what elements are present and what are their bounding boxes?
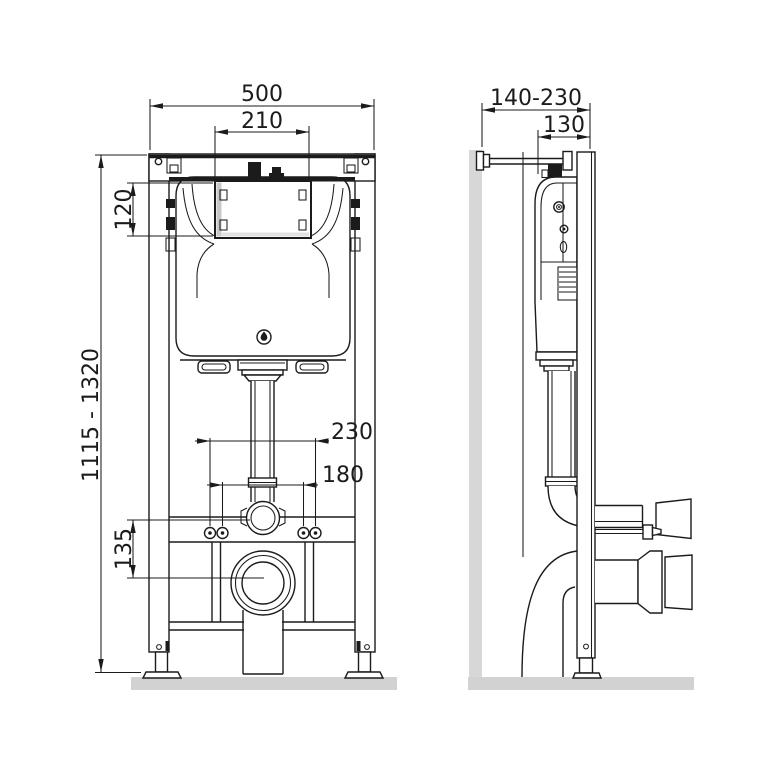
dim-fixing-inner: 180 bbox=[207, 463, 364, 488]
dim-label-500: 500 bbox=[241, 82, 283, 107]
dim-label-135: 135 bbox=[112, 528, 137, 570]
dim-label-140-230: 140-230 bbox=[490, 86, 582, 111]
front-view: 500 210 120 1115 - 1320 bbox=[79, 82, 397, 690]
inlet-connector-side bbox=[548, 165, 562, 178]
inlet-stub bbox=[248, 162, 261, 177]
anchor-hole-left bbox=[155, 158, 161, 164]
flush-plate-panel bbox=[215, 181, 311, 238]
floor-side bbox=[468, 677, 694, 690]
dim-label-180: 180 bbox=[322, 463, 364, 488]
dim-label-1115-1320: 1115 - 1320 bbox=[79, 348, 104, 482]
flush-pipe-front bbox=[238, 360, 287, 502]
waste-connection bbox=[595, 551, 692, 613]
wall bbox=[469, 150, 482, 677]
cistern-front bbox=[166, 162, 360, 360]
dim-label-130: 130 bbox=[543, 113, 585, 138]
dim-label-120: 120 bbox=[112, 189, 137, 231]
waste-connector-flange bbox=[638, 551, 662, 613]
anchor-hole-right bbox=[362, 158, 368, 164]
waste-connector-cone bbox=[665, 555, 692, 610]
side-view: 140-230 130 bbox=[468, 86, 694, 690]
technical-drawing-page: 500 210 120 1115 - 1320 bbox=[0, 0, 780, 780]
dim-label-230: 230 bbox=[331, 420, 373, 445]
cistern-side bbox=[535, 165, 577, 372]
floor-front bbox=[131, 677, 397, 690]
installation-frame-drawing: 500 210 120 1115 - 1320 bbox=[0, 0, 780, 780]
dim-installation-height: 1115 - 1320 bbox=[79, 155, 147, 673]
waste-bend-side bbox=[522, 551, 577, 677]
dim-label-210: 210 bbox=[241, 109, 283, 134]
flush-elbow-front bbox=[241, 502, 285, 535]
valve-cartridge bbox=[558, 267, 577, 300]
dim-fixing-outer: 230 bbox=[195, 420, 373, 445]
drain-channel bbox=[243, 610, 283, 674]
waste-outlet-front bbox=[231, 551, 295, 615]
